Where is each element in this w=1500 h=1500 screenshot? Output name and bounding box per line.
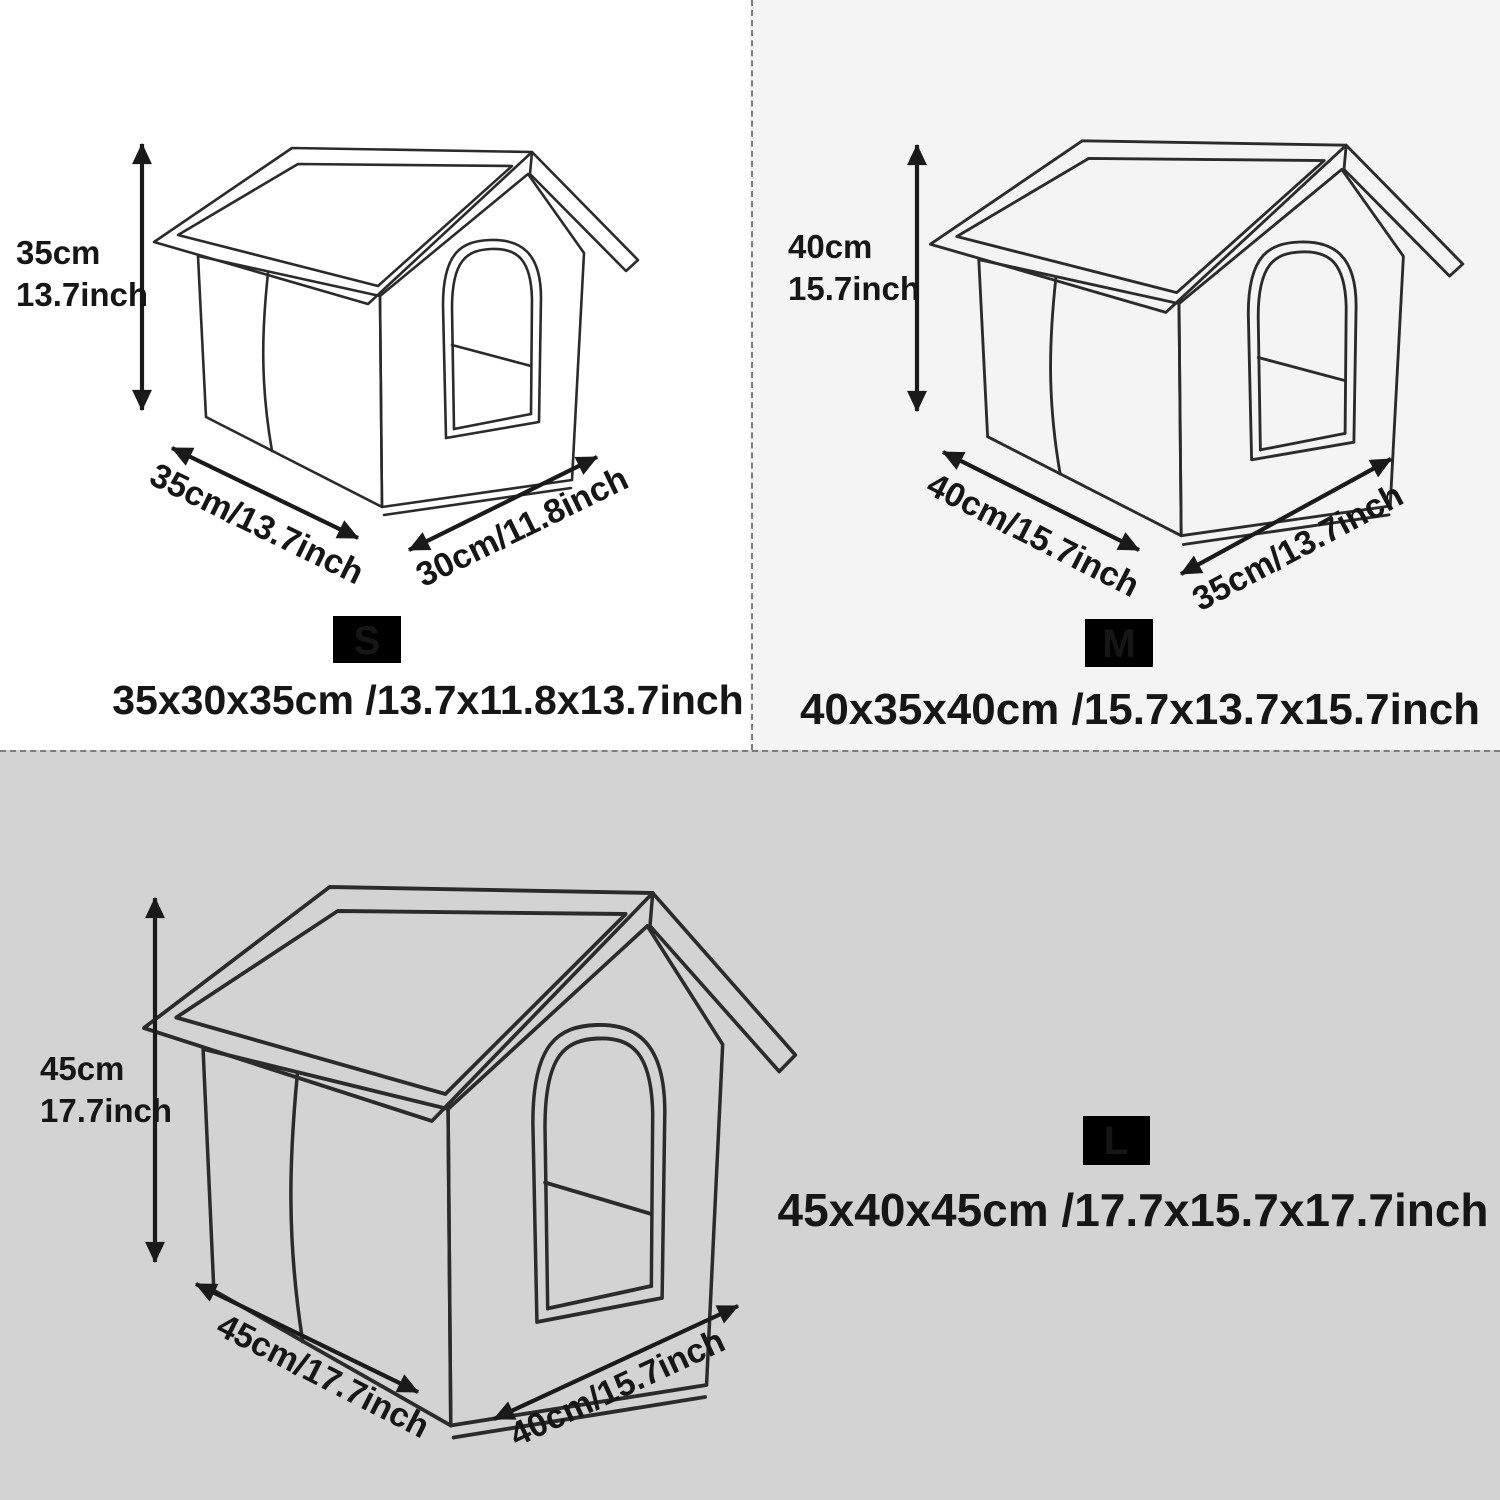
dimensions-text-l: 45x40x45cm /17.7x15.7x17.7inch bbox=[777, 1184, 1488, 1236]
height-label-inch-m: 15.7inch bbox=[788, 270, 920, 307]
dimensions-text-m: 40x35x40cm /15.7x13.7x15.7inch bbox=[800, 685, 1480, 734]
panel-l-background bbox=[0, 750, 1500, 1500]
size-badge-letter-l: L bbox=[1104, 1119, 1128, 1163]
height-label-cm-l: 45cm bbox=[40, 1050, 124, 1087]
size-badge-letter-s: S bbox=[354, 619, 381, 663]
panel-size-m: 40cm 15.7inch 40cm/15.7inch 35cm/13.7inc… bbox=[750, 0, 1500, 750]
size-badge-letter-m: M bbox=[1102, 622, 1135, 666]
panel-size-s: 35cm 13.7inch 35cm/13.7inch 30cm/11.8inc… bbox=[0, 0, 750, 750]
height-label-inch-s: 13.7inch bbox=[16, 276, 148, 313]
height-label-cm-m: 40cm bbox=[788, 228, 872, 265]
height-label-inch-l: 17.7inch bbox=[40, 1092, 172, 1129]
vertical-divider bbox=[751, 0, 753, 750]
size-chart: 35cm 13.7inch 35cm/13.7inch 30cm/11.8inc… bbox=[0, 0, 1500, 1500]
height-label-cm-s: 35cm bbox=[16, 234, 100, 271]
dimensions-text-s: 35x30x35cm /13.7x11.8x13.7inch bbox=[112, 677, 743, 723]
panel-size-l: 45cm 17.7inch 45cm/17.7inch 40cm/15.7inc… bbox=[0, 750, 1500, 1500]
horizontal-divider bbox=[0, 750, 1500, 752]
